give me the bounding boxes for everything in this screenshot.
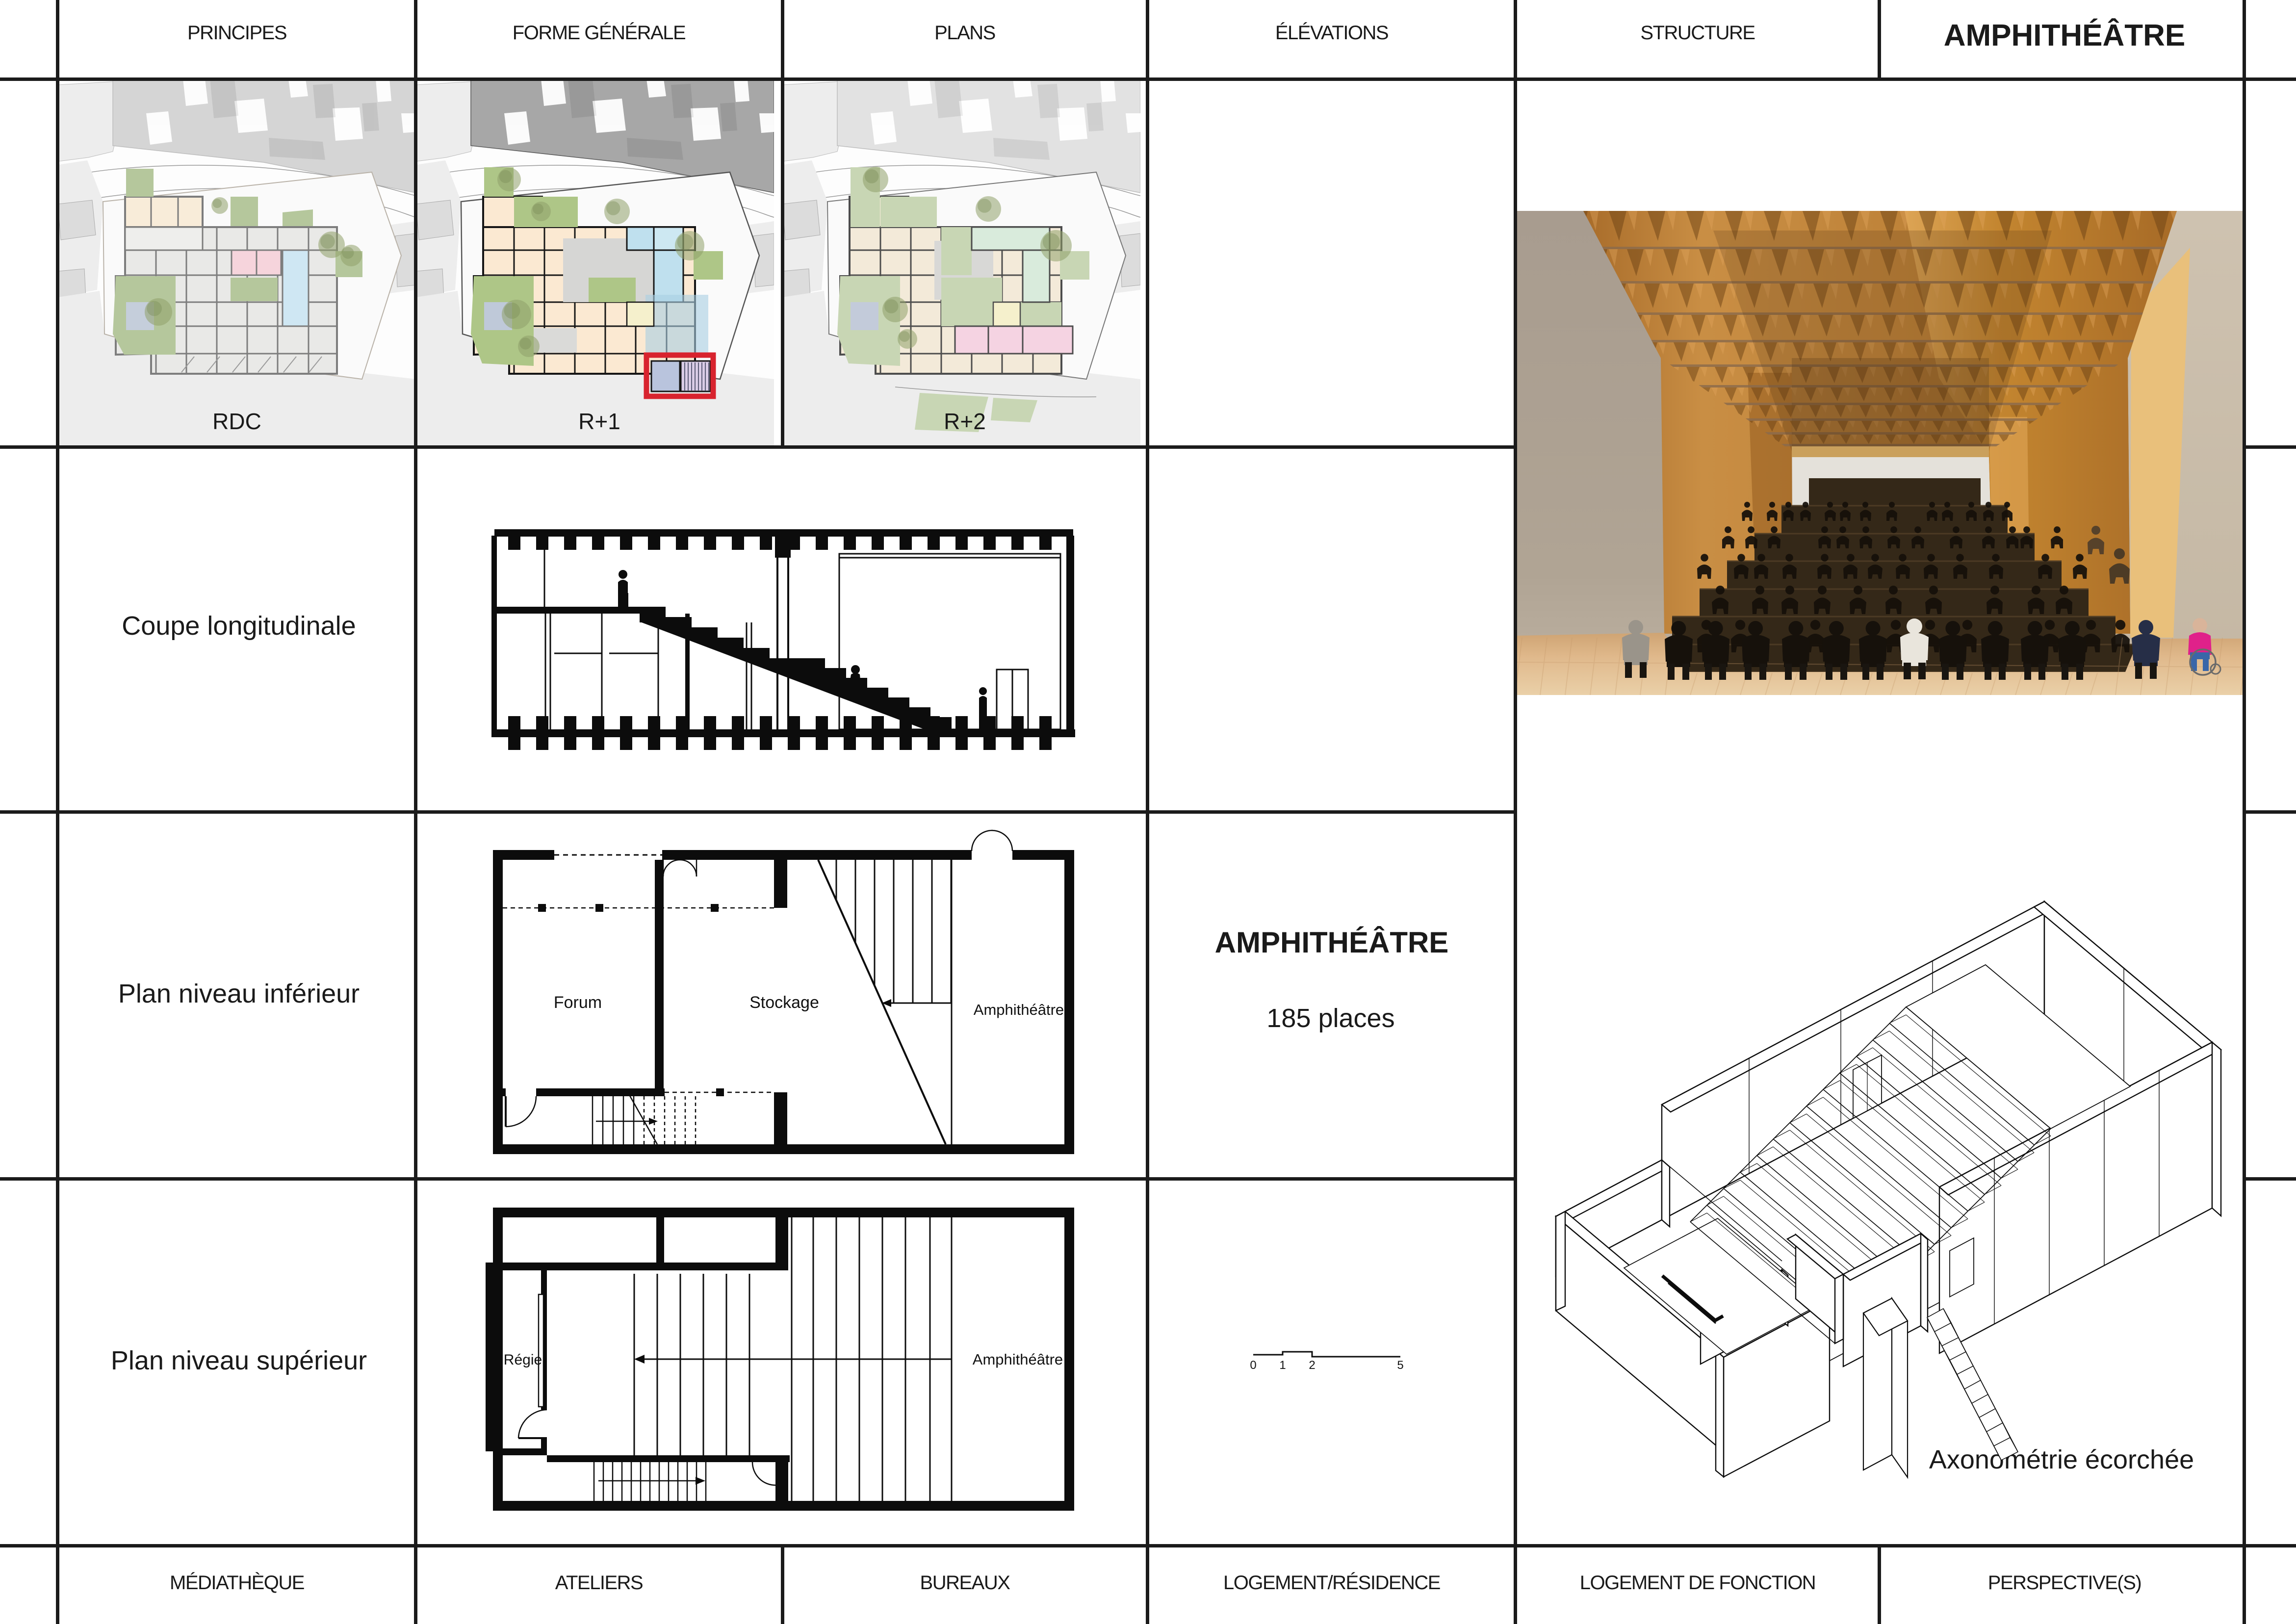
svg-text:0: 0 (1250, 1359, 1256, 1372)
svg-text:5: 5 (1397, 1359, 1403, 1372)
svg-text:RDC: RDC (212, 409, 261, 434)
svg-text:Régie: Régie (504, 1352, 542, 1368)
svg-text:R+1: R+1 (578, 409, 620, 434)
svg-text:Stockage: Stockage (749, 993, 819, 1012)
svg-text:2: 2 (1309, 1359, 1315, 1372)
svg-text:Amphithéâtre: Amphithéâtre (974, 1001, 1064, 1018)
svg-text:Amphithéâtre: Amphithéâtre (973, 1351, 1063, 1368)
svg-text:1: 1 (1279, 1359, 1286, 1372)
svg-text:R+2: R+2 (944, 409, 986, 434)
svg-text:Forum: Forum (554, 993, 602, 1012)
